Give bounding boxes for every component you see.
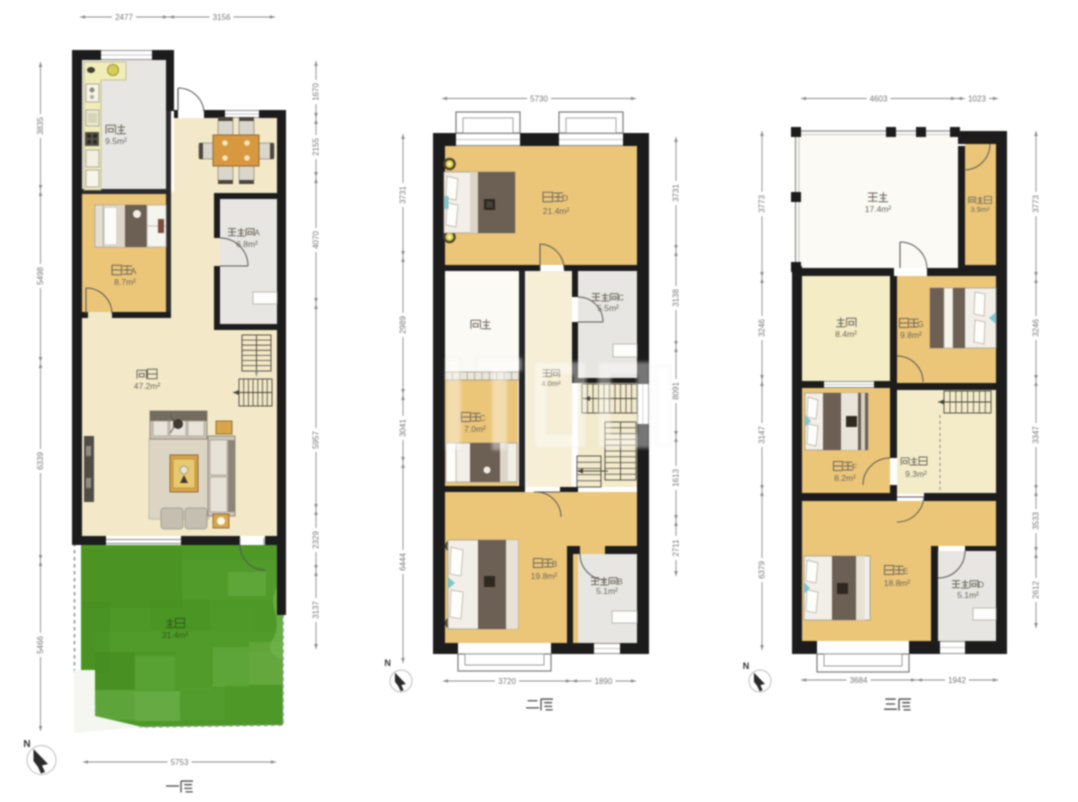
svg-text:C: C [618,294,624,303]
svg-text:1613: 1613 [672,469,681,487]
svg-text:5466: 5466 [36,636,45,654]
svg-text:8.4m²: 8.4m² [835,329,857,339]
svg-text:5.1m²: 5.1m² [596,586,618,596]
svg-text:8091: 8091 [672,382,681,400]
svg-text:N: N [384,658,391,668]
svg-text:1023: 1023 [968,94,986,103]
svg-text:5.1m²: 5.1m² [957,590,979,600]
svg-text:2155: 2155 [312,138,321,156]
svg-text:1890: 1890 [595,677,613,686]
svg-text:5957: 5957 [312,431,321,449]
svg-text:1670: 1670 [312,83,321,101]
svg-text:3246: 3246 [758,319,767,337]
svg-text:3156: 3156 [213,13,231,22]
svg-text:6339: 6339 [36,452,45,470]
svg-text:6.8m²: 6.8m² [236,239,258,249]
svg-text:3773: 3773 [758,195,767,213]
svg-text:9.3m²: 9.3m² [905,469,927,479]
svg-text:N: N [23,739,30,750]
svg-text:3720: 3720 [498,677,516,686]
svg-text:5730: 5730 [530,94,548,103]
svg-text:9.5m²: 9.5m² [105,136,127,146]
svg-text:3138: 3138 [672,289,681,307]
svg-text:A: A [254,229,260,238]
svg-text:18.8m²: 18.8m² [884,578,911,588]
svg-text:3246: 3246 [1032,319,1041,337]
svg-text:5753: 5753 [171,758,189,767]
svg-text:E: E [903,567,908,576]
svg-text:A: A [131,266,137,276]
svg-text:C: C [480,414,486,423]
svg-text:G: G [917,320,923,329]
svg-text:4603: 4603 [870,94,888,103]
svg-text:1942: 1942 [948,676,966,685]
svg-text:21.4m²: 21.4m² [543,206,570,216]
svg-text:2477: 2477 [115,13,133,22]
svg-text:F: F [852,463,857,472]
svg-text:5498: 5498 [36,267,45,285]
svg-text:D: D [562,193,568,203]
svg-text:31.4m²: 31.4m² [162,630,189,640]
svg-text:8.7m²: 8.7m² [114,277,136,287]
svg-text:2612: 2612 [1032,581,1041,599]
svg-text:4070: 4070 [312,231,321,249]
svg-text:9.8m²: 9.8m² [900,330,922,340]
svg-text:B: B [617,578,622,587]
svg-text:3773: 3773 [1032,195,1041,213]
svg-text:3137: 3137 [312,601,321,619]
svg-text:47.2m²: 47.2m² [134,381,161,391]
svg-text:2989: 2989 [399,316,408,334]
svg-text:3347: 3347 [1032,426,1041,444]
svg-text:B: B [552,560,557,569]
svg-text:3041: 3041 [399,419,408,437]
svg-text:6444: 6444 [399,553,408,571]
svg-text:3684: 3684 [850,676,868,685]
svg-text:6379: 6379 [758,561,767,579]
svg-text:19.8m²: 19.8m² [531,571,558,581]
svg-text:3731: 3731 [672,184,681,202]
svg-text:3147: 3147 [758,426,767,444]
svg-text:5.5m²: 5.5m² [597,303,619,313]
svg-text:7.0m²: 7.0m² [464,424,486,434]
svg-text:3835: 3835 [36,117,45,135]
svg-text:8.2m²: 8.2m² [834,473,856,483]
svg-text:17.4m²: 17.4m² [865,204,892,214]
svg-text:2711: 2711 [672,539,681,557]
svg-text:3731: 3731 [399,186,408,204]
svg-text:3.9m²: 3.9m² [970,205,990,214]
svg-text:D: D [978,581,984,590]
svg-text:3533: 3533 [1032,512,1041,530]
svg-text:2329: 2329 [312,531,321,549]
svg-text:N: N [743,661,750,671]
